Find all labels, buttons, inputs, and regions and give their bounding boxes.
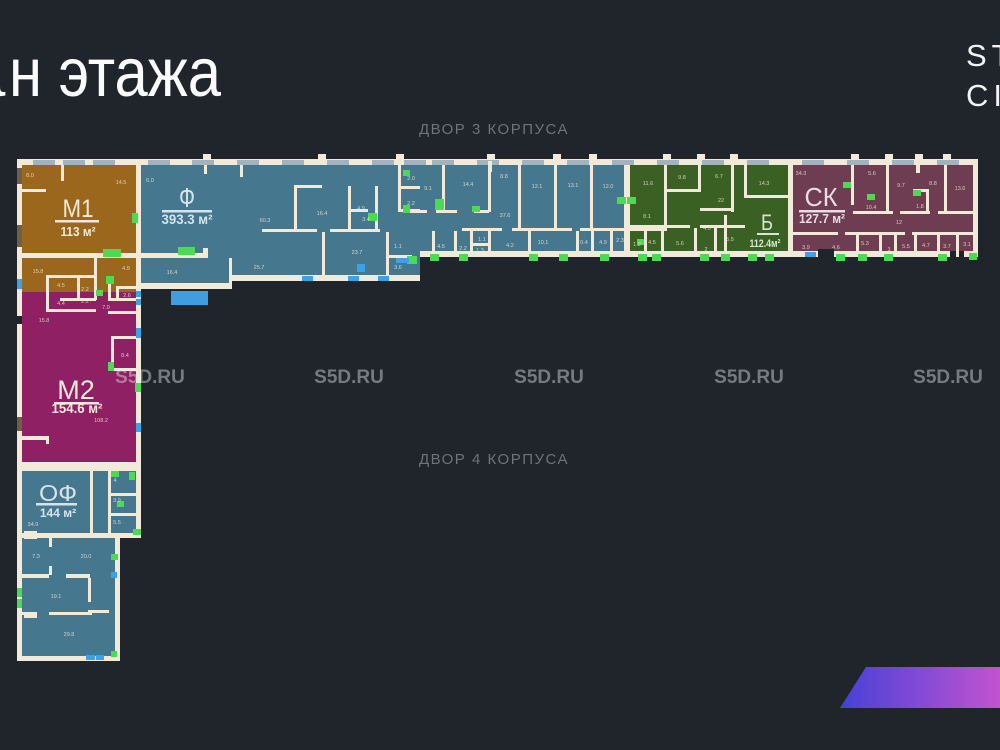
svg-text:9.7: 9.7 bbox=[897, 183, 905, 189]
svg-text:5.3: 5.3 bbox=[861, 241, 869, 247]
svg-text:4.9: 4.9 bbox=[599, 240, 607, 246]
svg-text:3: 3 bbox=[887, 247, 890, 253]
svg-text:S5D.RU: S5D.RU bbox=[714, 367, 784, 388]
svg-text:S5D.RU: S5D.RU bbox=[115, 367, 185, 388]
svg-text:393.3 м²: 393.3 м² bbox=[162, 212, 213, 227]
svg-text:2.6: 2.6 bbox=[123, 293, 131, 299]
svg-text:ДВОР 4 КОРПУСА: ДВОР 4 КОРПУСА bbox=[419, 451, 569, 468]
svg-text:4.5: 4.5 bbox=[437, 244, 445, 250]
svg-text:34.9: 34.9 bbox=[28, 522, 39, 528]
svg-text:25.7: 25.7 bbox=[254, 265, 265, 271]
svg-text:5.5: 5.5 bbox=[113, 520, 121, 526]
svg-text:7.0: 7.0 bbox=[102, 305, 110, 311]
svg-text:127.7 м²: 127.7 м² bbox=[799, 211, 846, 226]
svg-text:8.0: 8.0 bbox=[26, 173, 34, 179]
svg-text:4.6: 4.6 bbox=[832, 245, 840, 251]
svg-text:29.8: 29.8 bbox=[64, 632, 75, 638]
svg-text:37.6: 37.6 bbox=[500, 213, 511, 219]
svg-text:112.4м²: 112.4м² bbox=[750, 238, 781, 250]
svg-text:4.4: 4.4 bbox=[57, 301, 65, 307]
svg-text:15.8: 15.8 bbox=[39, 318, 50, 324]
svg-text:Б: Б bbox=[761, 210, 773, 235]
svg-text:1.1: 1.1 bbox=[394, 244, 402, 250]
svg-text:а: а bbox=[0, 34, 6, 111]
svg-text:4.0: 4.0 bbox=[703, 226, 711, 232]
svg-text:1.1: 1.1 bbox=[478, 237, 486, 243]
svg-text:ДВОР 3 КОРПУСА: ДВОР 3 КОРПУСА bbox=[419, 121, 569, 138]
svg-text:154.6 м²: 154.6 м² bbox=[52, 401, 103, 416]
svg-text:7.3: 7.3 bbox=[32, 554, 40, 560]
svg-text:5.6: 5.6 bbox=[868, 171, 876, 177]
svg-text:1.3: 1.3 bbox=[476, 248, 484, 254]
svg-text:5.5: 5.5 bbox=[726, 237, 734, 243]
svg-text:34.3: 34.3 bbox=[796, 171, 807, 177]
svg-text:12.0: 12.0 bbox=[603, 184, 614, 190]
svg-text:2.2: 2.2 bbox=[81, 287, 89, 293]
svg-text:14.5: 14.5 bbox=[116, 180, 127, 186]
svg-text:5.5: 5.5 bbox=[902, 244, 910, 250]
svg-text:8.4: 8.4 bbox=[121, 353, 129, 359]
svg-text:ST: ST bbox=[966, 38, 1000, 73]
svg-text:14.3: 14.3 bbox=[759, 181, 770, 187]
svg-text:3.9: 3.9 bbox=[113, 498, 121, 504]
svg-text:S5D.RU: S5D.RU bbox=[514, 367, 584, 388]
svg-text:6.7: 6.7 bbox=[715, 174, 723, 180]
svg-text:6.0: 6.0 bbox=[146, 178, 154, 184]
svg-text:8.8: 8.8 bbox=[929, 181, 937, 187]
svg-text:1.2: 1.2 bbox=[633, 242, 641, 248]
svg-text:13.1: 13.1 bbox=[568, 183, 579, 189]
svg-text:4.9: 4.9 bbox=[122, 266, 130, 272]
svg-text:3.4: 3.4 bbox=[362, 217, 370, 223]
svg-text:Ф: Ф bbox=[179, 182, 195, 213]
svg-text:10.1: 10.1 bbox=[538, 240, 549, 246]
svg-text:S5D.RU: S5D.RU bbox=[314, 367, 384, 388]
svg-text:9.1: 9.1 bbox=[424, 186, 432, 192]
svg-text:4.5: 4.5 bbox=[57, 283, 65, 289]
svg-text:8.1: 8.1 bbox=[643, 214, 651, 220]
svg-text:60.3: 60.3 bbox=[260, 218, 271, 224]
svg-text:4.2: 4.2 bbox=[506, 243, 514, 249]
svg-text:М1: М1 bbox=[63, 195, 94, 223]
svg-text:4.9: 4.9 bbox=[357, 206, 365, 212]
svg-text:2.2: 2.2 bbox=[407, 201, 415, 207]
svg-text:12: 12 bbox=[896, 220, 902, 226]
svg-text:20.0: 20.0 bbox=[81, 554, 92, 560]
svg-text:144 м²: 144 м² bbox=[40, 506, 76, 520]
svg-text:1.8: 1.8 bbox=[916, 204, 924, 210]
svg-text:2: 2 bbox=[704, 247, 707, 253]
svg-text:3.6: 3.6 bbox=[394, 265, 402, 271]
svg-text:11.6: 11.6 bbox=[643, 181, 653, 187]
svg-text:S5D.RU: S5D.RU bbox=[913, 367, 983, 388]
svg-text:2.0: 2.0 bbox=[407, 176, 415, 182]
svg-text:16.4: 16.4 bbox=[167, 270, 178, 276]
svg-text:13.6: 13.6 bbox=[955, 186, 966, 192]
svg-text:15.8: 15.8 bbox=[33, 269, 44, 275]
svg-text:СК: СК bbox=[805, 182, 838, 212]
svg-text:0.4: 0.4 bbox=[580, 240, 588, 246]
svg-text:5.6: 5.6 bbox=[676, 241, 684, 247]
svg-text:3.7: 3.7 bbox=[943, 244, 951, 250]
svg-text:9.8: 9.8 bbox=[678, 175, 686, 181]
svg-text:CI: CI bbox=[966, 78, 1000, 113]
svg-text:2.3: 2.3 bbox=[616, 238, 624, 244]
svg-text:2.2: 2.2 bbox=[81, 299, 89, 305]
svg-text:2.2: 2.2 bbox=[459, 246, 467, 252]
svg-text:ОФ: ОФ bbox=[39, 480, 77, 506]
svg-text:14.4: 14.4 bbox=[463, 182, 474, 188]
svg-text:108.2: 108.2 bbox=[94, 418, 108, 424]
svg-text:3.9: 3.9 bbox=[802, 245, 810, 251]
svg-text:4.7: 4.7 bbox=[922, 243, 930, 249]
svg-text:16.4: 16.4 bbox=[317, 211, 328, 217]
svg-text:19.1: 19.1 bbox=[51, 594, 62, 600]
svg-text:4.5: 4.5 bbox=[648, 240, 656, 246]
svg-text:4: 4 bbox=[113, 478, 116, 484]
svg-text:н этажа: н этажа bbox=[9, 34, 222, 111]
svg-text:8.8: 8.8 bbox=[500, 174, 508, 180]
svg-text:10.4: 10.4 bbox=[866, 205, 877, 211]
svg-text:12.1: 12.1 bbox=[532, 184, 543, 190]
svg-text:23.7: 23.7 bbox=[352, 250, 363, 256]
svg-text:113 м²: 113 м² bbox=[61, 224, 97, 239]
svg-text:22: 22 bbox=[718, 198, 724, 204]
svg-text:3.1: 3.1 bbox=[963, 242, 971, 248]
